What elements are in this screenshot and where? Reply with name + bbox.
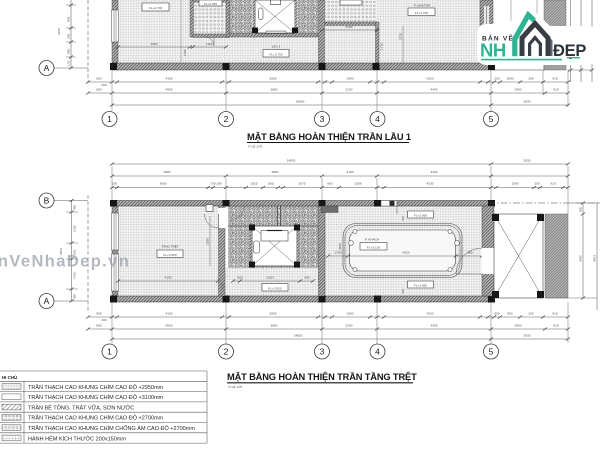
svg-text:300: 300 xyxy=(401,216,405,221)
svg-text:4230: 4230 xyxy=(427,181,434,185)
svg-text:3: 3 xyxy=(320,114,325,124)
svg-text:560: 560 xyxy=(268,181,273,185)
svg-text:TỈ LỆ 1/75: TỈ LỆ 1/75 xyxy=(248,144,263,149)
svg-text:2930: 2930 xyxy=(524,333,531,337)
svg-text:2278: 2278 xyxy=(399,33,403,40)
svg-text:650: 650 xyxy=(67,49,71,54)
svg-text:3873: 3873 xyxy=(593,255,597,262)
svg-text:TRẦN THẠCH CAO KHUNG CHÌM CAO: TRẦN THẠCH CAO KHUNG CHÌM CAO ĐỘ +2700mm xyxy=(28,415,164,422)
svg-text:FL+2.950: FL+2.950 xyxy=(163,253,176,257)
svg-text:TỈ LỆ 1/75: TỈ LỆ 1/75 xyxy=(228,384,243,389)
svg-text:4220: 4220 xyxy=(427,77,434,81)
svg-text:1130: 1130 xyxy=(221,283,225,290)
svg-text:200: 200 xyxy=(494,77,499,81)
svg-text:450: 450 xyxy=(73,205,77,210)
svg-text:B: B xyxy=(44,196,50,206)
svg-text:300: 300 xyxy=(401,289,405,294)
svg-text:4500: 4500 xyxy=(166,324,173,328)
svg-text:4420: 4420 xyxy=(431,324,438,328)
svg-text:14820: 14820 xyxy=(294,333,303,337)
svg-text:1508: 1508 xyxy=(355,181,362,185)
svg-text:4100: 4100 xyxy=(166,312,173,316)
svg-text:730 180: 730 180 xyxy=(210,181,221,185)
svg-text:803: 803 xyxy=(67,17,71,22)
svg-text:FL+2.950: FL+2.950 xyxy=(414,284,427,288)
svg-text:4: 4 xyxy=(375,114,380,124)
svg-text:3500: 3500 xyxy=(270,77,277,81)
svg-text:500: 500 xyxy=(494,312,499,316)
svg-text:FL+2.950: FL+2.950 xyxy=(414,214,427,218)
svg-text:1: 1 xyxy=(107,114,112,124)
svg-text:1500: 1500 xyxy=(512,181,519,185)
svg-text:900: 900 xyxy=(304,276,309,280)
svg-text:450: 450 xyxy=(73,294,77,299)
svg-text:FL+2.700: FL+2.700 xyxy=(269,52,282,56)
svg-text:2900: 2900 xyxy=(151,42,158,46)
svg-text:1715: 1715 xyxy=(380,43,384,50)
svg-text:200: 200 xyxy=(528,77,533,81)
svg-text:TRẦN THẠCH CAO KHUNG CHÌM CAO: TRẦN THẠCH CAO KHUNG CHÌM CAO ĐỘ +3100mm xyxy=(28,394,164,401)
svg-text:4150: 4150 xyxy=(165,276,172,280)
svg-text:200: 200 xyxy=(534,181,539,185)
svg-text:850: 850 xyxy=(96,77,101,81)
svg-text:3265: 3265 xyxy=(338,243,342,250)
svg-text:4100: 4100 xyxy=(166,77,173,81)
svg-text:3500: 3500 xyxy=(270,312,277,316)
svg-text:P. MASTER: P. MASTER xyxy=(414,4,431,8)
svg-text:2100: 2100 xyxy=(346,25,353,29)
svg-text:NH: NH xyxy=(480,40,506,61)
svg-text:4520: 4520 xyxy=(403,250,410,254)
svg-text:200: 200 xyxy=(112,181,117,185)
svg-text:3800: 3800 xyxy=(271,324,278,328)
svg-text:810: 810 xyxy=(553,324,558,328)
svg-text:TRẦN BÊ TÔNG, TRÁT VỮA, SƠN NƯ: TRẦN BÊ TÔNG, TRÁT VỮA, SƠN NƯỚC xyxy=(28,403,134,411)
svg-text:200: 200 xyxy=(101,83,106,87)
svg-text:3600: 3600 xyxy=(160,181,167,185)
svg-text:4420: 4420 xyxy=(431,170,438,174)
svg-text:FL+2.350: FL+2.350 xyxy=(204,2,217,6)
svg-text:200: 200 xyxy=(101,318,106,322)
svg-text:P. KHÁCH: P. KHÁCH xyxy=(365,238,379,242)
svg-text:2: 2 xyxy=(224,114,229,124)
svg-text:BanVeNhaDep.vn: BanVeNhaDep.vn xyxy=(0,253,130,271)
svg-text:850: 850 xyxy=(96,312,101,316)
svg-text:810: 810 xyxy=(553,88,558,92)
svg-text:910: 910 xyxy=(552,77,557,81)
svg-text:1410: 1410 xyxy=(73,272,77,279)
svg-text:910: 910 xyxy=(552,312,557,316)
svg-text:1900: 1900 xyxy=(347,312,354,316)
svg-text:2090: 2090 xyxy=(515,88,522,92)
svg-text:FL+3.100: FL+3.100 xyxy=(367,245,380,249)
svg-text:2930: 2930 xyxy=(524,159,531,163)
svg-text:1150: 1150 xyxy=(183,49,187,56)
svg-text:14820: 14820 xyxy=(296,100,305,104)
svg-text:3: 3 xyxy=(320,347,325,357)
svg-text:TẦNG TRỆT: TẦNG TRỆT xyxy=(161,244,179,249)
svg-text:600: 600 xyxy=(579,207,583,212)
svg-text:1825: 1825 xyxy=(251,181,258,185)
svg-text:2100: 2100 xyxy=(346,324,353,328)
svg-text:4600: 4600 xyxy=(164,170,171,174)
svg-text:900: 900 xyxy=(237,276,242,280)
svg-text:175: 175 xyxy=(67,61,71,66)
svg-text:4500: 4500 xyxy=(166,88,173,92)
svg-text:4: 4 xyxy=(375,347,380,357)
svg-text:5: 5 xyxy=(489,347,494,357)
svg-text:FL+2.700: FL+2.700 xyxy=(415,11,428,15)
svg-text:14820: 14820 xyxy=(287,159,296,163)
svg-text:910: 910 xyxy=(550,181,555,185)
svg-text:850: 850 xyxy=(96,88,101,92)
svg-text:3800: 3800 xyxy=(271,88,278,92)
svg-text:3420: 3420 xyxy=(579,255,583,262)
svg-text:TRẦN THẠCH CAO KHUNG CHÌM CHỐN: TRẦN THẠCH CAO KHUNG CHÌM CHỐNG ẨM CAO Đ… xyxy=(28,425,195,432)
svg-text:3073: 3073 xyxy=(57,28,61,35)
svg-text:3800: 3800 xyxy=(272,170,279,174)
svg-text:2: 2 xyxy=(224,347,229,357)
svg-text:MẶT BẰNG HOÀN THIỆN TRẦN TẦNG: MẶT BẰNG HOÀN THIỆN TRẦN TẦNG TRỆT xyxy=(227,371,417,382)
svg-text:1800: 1800 xyxy=(507,77,514,81)
svg-text:2100: 2100 xyxy=(346,88,353,92)
svg-text:2930: 2930 xyxy=(524,100,531,104)
svg-text:TRẦN THẠCH CAO KHUNG CHÌM CAO: TRẦN THẠCH CAO KHUNG CHÌM CAO ĐỘ +2950mm xyxy=(28,384,164,391)
svg-text:4420: 4420 xyxy=(431,88,438,92)
svg-text:663: 663 xyxy=(327,181,332,185)
svg-text:HÀNH HÈM KÍCH THƯỚC 200x150mm: HÀNH HÈM KÍCH THƯỚC 200x150mm xyxy=(28,435,126,442)
svg-text:LẦU 1: LẦU 1 xyxy=(272,45,281,49)
svg-text:200: 200 xyxy=(528,312,533,316)
svg-text:2090: 2090 xyxy=(515,324,522,328)
svg-text:1675: 1675 xyxy=(299,181,306,185)
svg-text:850: 850 xyxy=(96,324,101,328)
svg-text:800: 800 xyxy=(507,312,512,316)
svg-text:1: 1 xyxy=(107,347,112,357)
svg-text:1400: 1400 xyxy=(206,42,213,46)
svg-text:2265: 2265 xyxy=(206,238,210,245)
svg-text:235: 235 xyxy=(67,34,71,39)
svg-text:FL+2.700: FL+2.700 xyxy=(149,6,162,10)
svg-text:1700: 1700 xyxy=(335,250,342,254)
svg-text:5: 5 xyxy=(489,114,494,124)
svg-text:2100: 2100 xyxy=(347,170,354,174)
svg-text:FL+2.950: FL+2.950 xyxy=(268,286,281,290)
svg-text:A: A xyxy=(44,63,50,73)
svg-text:A: A xyxy=(44,296,50,306)
svg-text:MẶT BẰNG HOÀN THIỆN TRẦN LẦU 1: MẶT BẰNG HOÀN THIỆN TRẦN LẦU 1 xyxy=(247,131,411,142)
svg-text:1230: 1230 xyxy=(73,225,77,232)
svg-text:2350: 2350 xyxy=(267,276,274,280)
svg-text:1900: 1900 xyxy=(347,77,354,81)
svg-text:HI CHÚ: HI CHÚ xyxy=(2,375,17,380)
svg-text:4220: 4220 xyxy=(427,312,434,316)
